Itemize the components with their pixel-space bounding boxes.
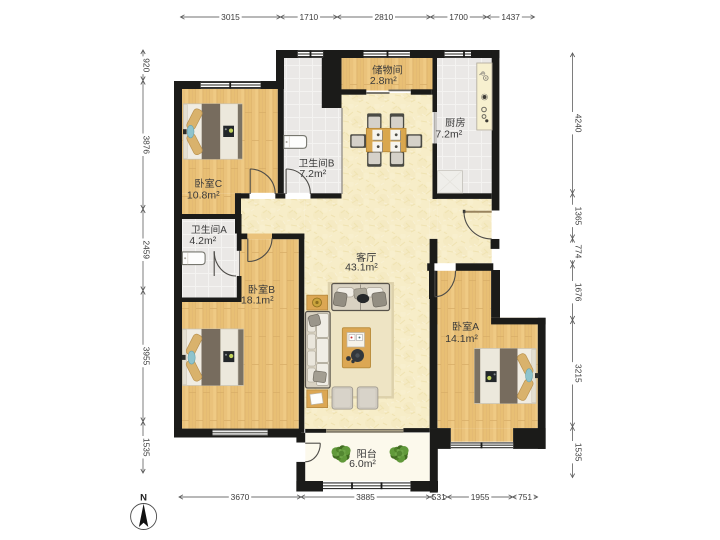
svg-text:1676: 1676 [573, 283, 583, 302]
svg-text:7.2m²: 7.2m² [435, 129, 462, 141]
svg-text:1955: 1955 [471, 492, 490, 502]
svg-text:N: N [140, 493, 147, 504]
svg-text:3885: 3885 [356, 492, 375, 502]
svg-text:531: 531 [432, 492, 446, 502]
svg-text:1535: 1535 [142, 438, 152, 457]
svg-text:1700: 1700 [449, 12, 468, 22]
svg-text:43.1m²: 43.1m² [345, 262, 378, 274]
svg-text:10.8m²: 10.8m² [187, 190, 220, 202]
svg-text:774: 774 [573, 244, 583, 258]
svg-text:1535: 1535 [573, 443, 583, 462]
svg-text:920: 920 [142, 58, 152, 72]
svg-text:6.0m²: 6.0m² [349, 458, 376, 470]
svg-text:4240: 4240 [573, 114, 583, 133]
svg-text:2810: 2810 [374, 12, 393, 22]
svg-text:1437: 1437 [501, 12, 520, 22]
svg-text:B: B [328, 159, 335, 170]
svg-text:3015: 3015 [221, 12, 240, 22]
svg-text:1710: 1710 [300, 12, 319, 22]
svg-text:751: 751 [518, 492, 532, 502]
svg-text:14.1m²: 14.1m² [445, 333, 478, 345]
svg-text:3876: 3876 [142, 135, 152, 154]
svg-text:3670: 3670 [231, 492, 250, 502]
svg-text:1365: 1365 [573, 207, 583, 226]
svg-text:A: A [472, 322, 479, 333]
svg-text:7.2m²: 7.2m² [299, 168, 326, 180]
svg-text:2.8m²: 2.8m² [370, 75, 397, 87]
svg-text:2459: 2459 [142, 240, 152, 259]
svg-text:18.1m²: 18.1m² [241, 294, 274, 306]
svg-text:C: C [215, 179, 222, 190]
svg-text:3955: 3955 [142, 347, 152, 366]
svg-text:4.2m²: 4.2m² [189, 235, 216, 247]
svg-text:A: A [220, 225, 227, 236]
svg-text:3215: 3215 [573, 364, 583, 383]
